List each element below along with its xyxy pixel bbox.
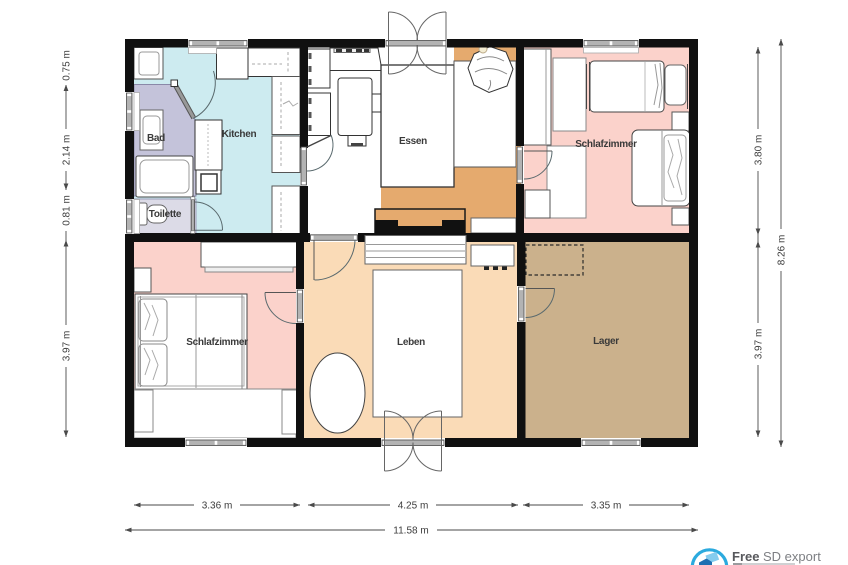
- svg-text:Toilette: Toilette: [149, 209, 182, 220]
- svg-text:3.80 m: 3.80 m: [754, 135, 765, 166]
- svg-text:Schlafzimmer: Schlafzimmer: [186, 337, 248, 348]
- svg-text:11.58 m: 11.58 m: [393, 526, 428, 537]
- svg-text:4.25 m: 4.25 m: [398, 501, 429, 512]
- svg-text:8.26 m: 8.26 m: [777, 235, 788, 266]
- svg-text:3.97 m: 3.97 m: [62, 331, 73, 362]
- svg-text:Kitchen: Kitchen: [222, 129, 257, 140]
- svg-text:Essen: Essen: [399, 136, 427, 147]
- svg-text:SD export: SD export: [763, 549, 821, 564]
- svg-text:2.14 m: 2.14 m: [62, 135, 73, 166]
- svg-text:0.75 m: 0.75 m: [62, 50, 73, 81]
- svg-text:3.35 m: 3.35 m: [591, 501, 622, 512]
- svg-text:Lager: Lager: [593, 336, 619, 347]
- svg-text:Schlafzimmer: Schlafzimmer: [575, 139, 637, 150]
- svg-text:3.97 m: 3.97 m: [754, 329, 765, 360]
- svg-text:Bad: Bad: [147, 133, 165, 144]
- svg-text:Leben: Leben: [397, 337, 425, 348]
- svg-text:Free: Free: [732, 549, 759, 564]
- svg-text:0.81 m: 0.81 m: [62, 195, 73, 226]
- svg-text:3.36 m: 3.36 m: [202, 501, 233, 512]
